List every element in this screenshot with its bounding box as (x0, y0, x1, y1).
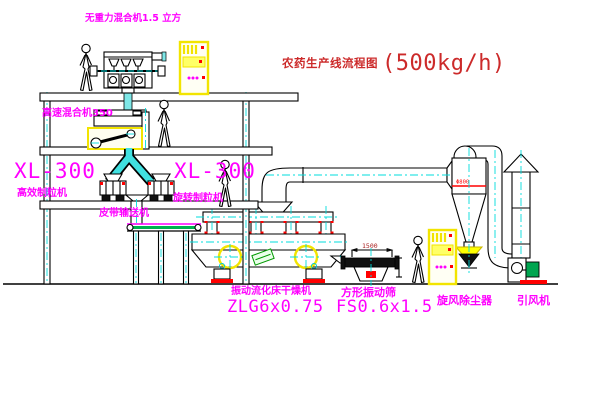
label-granulator-left-name: 高效制粒机 (17, 189, 67, 199)
label-belt-conveyor: 皮带输送机 (99, 209, 149, 219)
label-cyclone: 旋风除尘器 (437, 295, 492, 306)
fan-motor (526, 262, 539, 277)
label-gravity-mixer: 无重力混合机1.5 立方 (85, 14, 181, 24)
title-capacity: (500kg/h) (382, 51, 506, 76)
cyclone-dimension: Φ800 (456, 180, 469, 186)
label-dryer-model: ZLG6x0.75 (227, 299, 324, 316)
mixer-internals (109, 59, 143, 70)
fluid-bed-dryer (190, 206, 350, 283)
floor-slab (40, 93, 298, 101)
label-granulator-right-name: 旋转制粒机 (173, 194, 223, 204)
floor-slab (40, 201, 258, 209)
induced-draft-fan (508, 258, 547, 284)
control-cabinet (429, 230, 456, 284)
floor-slab (40, 147, 272, 155)
person-figure (158, 100, 170, 146)
label-high-speed-mixer: 高速混合机350 (42, 109, 113, 119)
title-chinese: 农药生产线流程图 (282, 55, 378, 71)
label-fan: 引风机 (517, 295, 550, 306)
control-cabinet (180, 42, 208, 94)
page-title: 农药生产线流程图 (500kg/h) (282, 48, 506, 78)
vibrating-sieve: 1500 (341, 242, 402, 286)
label-dryer-name: 振动流化床干燥机 (231, 287, 311, 297)
sieve-dimension: 1500 (362, 242, 378, 250)
process-flow-diagram: 1500 Φ800 (0, 0, 600, 403)
belt-drive-box (88, 128, 142, 149)
person-figure (412, 236, 424, 282)
label-granulator-right-model: XL-300 (174, 161, 256, 182)
label-granulator-left-model: XL-300 (14, 161, 96, 182)
mixer-motors (108, 74, 145, 87)
label-sieve-model: FS0.6x1.5 (336, 299, 433, 316)
belt-conveyor (127, 224, 201, 284)
gravity-free-mixer (90, 52, 166, 112)
indicator-symbol-icon (436, 266, 447, 269)
conveyor-legs (134, 231, 189, 284)
indicator-symbol-icon (188, 77, 199, 80)
granulator-left (100, 174, 126, 201)
